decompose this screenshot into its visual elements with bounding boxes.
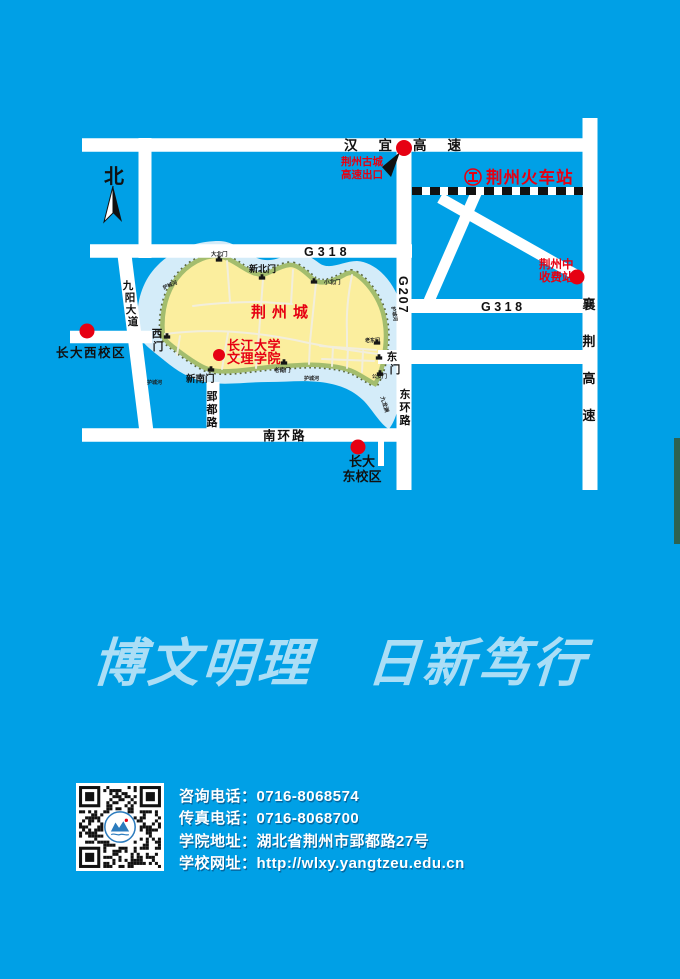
label-dongmen-char: 东 xyxy=(387,350,398,363)
qr-logo xyxy=(105,812,135,842)
qr-code xyxy=(76,783,164,871)
college-marker-dot xyxy=(213,349,225,361)
label-nanhuan: 南环路 xyxy=(263,428,307,443)
label-xiangjing-char: 速 xyxy=(582,408,595,423)
label-city-name: 荆州城 xyxy=(251,303,314,321)
label-donghuan-char: 路 xyxy=(400,413,412,427)
contact-value: 湖北省荆州市郢都路27号 xyxy=(257,833,430,850)
label-north: 北 xyxy=(104,165,124,188)
label-jiuyang-avenue: 九 阳 大 道 xyxy=(122,279,139,328)
label-moat-3: 护城河 xyxy=(304,375,319,382)
label-west-campus: 长大西校区 xyxy=(56,345,126,360)
label-gate-xinnanmen: 新南门 xyxy=(186,373,215,385)
label-gate-laonanmen: 老南门 xyxy=(273,366,291,374)
label-donghuan-road: 东 环 路 xyxy=(400,387,412,427)
toll-marker-dot xyxy=(570,270,585,285)
school-motto: 博文明理 日新笃行 xyxy=(85,618,595,710)
label-yingdu-road: 郢 都 路 xyxy=(206,389,219,429)
railway-logo-icon xyxy=(465,169,481,185)
scan-artifact xyxy=(674,438,680,544)
label-donghuan-char: 东 xyxy=(400,387,411,401)
contact-line-website: 学校网址：http://wlxy.yangtzeu.edu.cn xyxy=(179,853,465,875)
contact-block: 咨询电话：0716-8068574 传真电话：0716-8068700 学院地址… xyxy=(76,783,465,876)
label-dongmen-char: 门 xyxy=(390,363,401,376)
contact-label: 传真电话： xyxy=(179,810,257,827)
label-moat-2: 护城河 xyxy=(147,379,162,386)
label-gate-xinbeimen: 新北门 xyxy=(249,263,276,274)
label-hanyi-expressway: 汉宜高速 xyxy=(344,137,482,153)
contact-label: 学院地址： xyxy=(179,833,257,850)
contact-label: 咨询电话： xyxy=(179,788,257,805)
contact-line-phone: 咨询电话：0716-8068574 xyxy=(179,786,465,808)
city-map: 汉宜高速 G318 G318 G207 南环路 襄 荆 高 速 东 环 路 郢 … xyxy=(0,0,680,600)
label-xiangjing-char: 襄 xyxy=(581,297,596,312)
label-jiuyang-char: 九 xyxy=(122,279,134,292)
label-yingdu-char: 郢 xyxy=(207,389,218,403)
label-jiuyang-char: 大 xyxy=(126,303,137,316)
contact-line-fax: 传真电话：0716-8068700 xyxy=(179,808,465,830)
label-east-campus-line1: 长大 xyxy=(349,454,375,469)
contact-line-address: 学院地址：湖北省荆州市郢都路27号 xyxy=(179,831,465,853)
label-g207: G207 xyxy=(396,276,410,315)
west-campus-marker-dot xyxy=(80,324,95,339)
contact-value: http://wlxy.yangtzeu.edu.cn xyxy=(257,855,465,872)
label-xiangjing-char: 高 xyxy=(582,371,595,386)
label-toll-line1: 荆州中 xyxy=(539,257,574,271)
contact-value: 0716-8068574 xyxy=(257,788,360,805)
label-yingdu-char: 都 xyxy=(206,402,218,416)
contact-value: 0716-8068700 xyxy=(257,810,360,827)
label-ximen-char: 门 xyxy=(153,340,164,353)
label-gate-xiaobeimen: 小北门 xyxy=(324,278,341,286)
exit-marker-dot xyxy=(396,140,412,156)
label-jiuyang-char: 道 xyxy=(128,315,139,328)
brochure-page: 汉宜高速 G318 G318 G207 南环路 襄 荆 高 速 东 环 路 郢 … xyxy=(0,0,680,979)
contact-label: 学校网址： xyxy=(179,855,257,872)
label-station: 荆州火车站 xyxy=(486,167,574,187)
label-toll-line2: 收费站 xyxy=(539,270,574,284)
contact-lines: 咨询电话：0716-8068574 传真电话：0716-8068700 学院地址… xyxy=(179,783,465,876)
label-exit-line1: 荆州古城 xyxy=(341,155,383,168)
label-east-campus-line2: 东校区 xyxy=(342,469,381,484)
label-ximen-char: 西 xyxy=(152,328,163,340)
label-xiangjing-char: 荆 xyxy=(582,334,595,349)
north-needle-icon xyxy=(104,186,122,222)
road-jiuyang-avenue xyxy=(124,251,147,436)
label-jiuyang-char: 阳 xyxy=(125,292,136,304)
label-g318-east: G318 xyxy=(481,300,526,314)
label-college-line2: 文理学院 xyxy=(227,351,281,366)
label-donghuan-char: 环 xyxy=(400,401,411,414)
label-exit-line2: 高速出口 xyxy=(341,168,383,181)
east-campus-marker-dot xyxy=(351,440,366,455)
label-yingdu-char: 路 xyxy=(207,415,219,429)
label-g318: G318 xyxy=(304,245,351,259)
label-gate-ximen: 西 门 xyxy=(152,328,164,353)
